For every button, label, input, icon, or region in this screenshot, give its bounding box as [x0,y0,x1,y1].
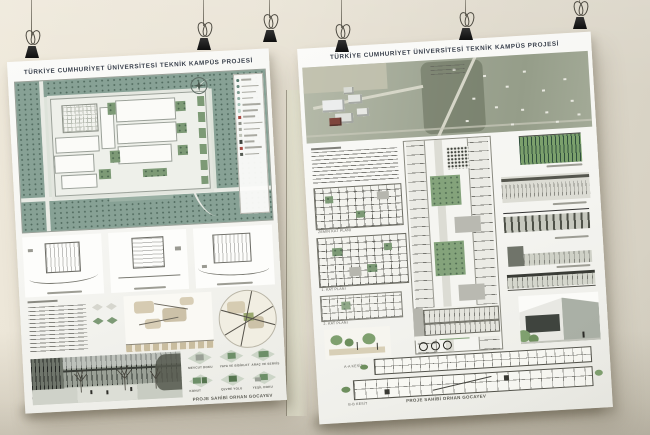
tree-icon [595,369,603,375]
aerial-building-red [329,118,341,127]
massing-label: YAYA VE BİSİKLET [220,363,250,369]
building-block [54,154,95,174]
bare-tree-icon [147,366,164,394]
legend-swatch-icon [236,85,239,88]
tree-icon [330,335,343,346]
building-hatched [61,103,98,133]
building-block [116,121,177,144]
legend-swatch-icon [240,146,243,149]
legend-text-bar [245,146,262,148]
sketch-buildings [132,236,165,268]
aerial-building [348,94,363,104]
elevation-drawing [507,242,592,267]
circle-detail [431,341,441,351]
courtyard [107,102,116,114]
floor-plan-small [316,233,409,288]
person-silhouette [106,390,108,395]
poster-left: TÜRKİYE CUMHURİYET ÜNİVERSİTESİ TEKNİK K… [7,48,287,413]
sketch-caption [47,290,82,294]
plan-courtyard [325,196,333,203]
elevation-drawing [503,208,590,237]
sketch-mark [28,249,33,252]
analysis-sketch [193,224,275,288]
legend-swatch-icon [239,128,242,131]
plan-courtyard [356,210,365,218]
section-solid [384,389,389,394]
elevation-tower [507,246,524,267]
axon-diagram-green [92,317,103,325]
axon-diagram-green [106,317,117,325]
massing-diagram: ARAÇ VE SERVİS [250,346,277,362]
plan-courtyard [341,301,350,310]
person-silhouette [90,390,92,395]
analysis-sketch [22,233,104,297]
legend-swatch-icon [237,103,240,106]
section-solid [504,375,509,380]
elevation-glazing [502,180,591,199]
person-silhouette [357,342,359,350]
elevation-caption [556,264,590,268]
massing-diagram: MEVCUT DOKU [186,350,213,366]
axon-diagram [106,303,117,311]
render-building-side [562,295,601,341]
legend-text-bar [241,85,258,87]
sketch-caption [134,286,166,289]
legend-swatch-icon [236,78,239,81]
courtyard [175,101,186,112]
plan-courtyard [332,248,342,257]
plan-label: 2. KAT PLANI [323,321,348,326]
campus-plate [50,91,211,197]
legend-text-bar [244,134,257,136]
courtyard [176,123,187,134]
plan-block [458,283,485,301]
plan-core [377,191,389,200]
elevation-drawing [501,172,590,203]
massing-label: ÇEVRE YOLU [221,386,243,391]
person-silhouette [130,387,132,392]
massing-diagram: ÇEVRE YOLU [219,371,246,387]
legend-text-bar [245,153,259,155]
elevation-drawing [519,132,583,165]
massing-diagram: KONUT [188,373,215,389]
sketch-patch [180,297,194,306]
sketch-road [118,274,181,278]
analysis-sketch-row [22,224,275,297]
elevation-colonnade [503,212,590,233]
legend-swatch-icon [238,122,241,125]
building-block [115,97,176,122]
massing-label: KONUT [189,388,201,393]
courtyard [178,145,189,156]
sketch-road [29,267,99,285]
building-block [118,144,173,165]
elevation-caption [546,163,582,167]
program-text-block [311,147,399,184]
floor-plan-small [313,183,403,230]
elevation-caption [553,201,587,205]
person-silhouette [377,343,379,350]
tree-icon [362,333,376,345]
landscape-vignette [324,326,392,360]
building-block [61,174,98,190]
sketch-mark [175,246,181,250]
legend-swatch-icon [239,134,242,137]
person-silhouette [583,332,585,338]
courtyard [110,150,121,163]
legend-swatch-icon [239,140,242,143]
text-block [28,304,88,353]
plan-courtyard [384,243,392,250]
legend-swatch-icon [237,97,240,100]
concept-row [26,288,279,357]
text-block-heading [28,300,58,304]
courtyard [143,168,167,177]
plan-label: 1. KAT PLANI [321,287,346,292]
circle-detail [443,340,453,350]
tree-icon [341,386,350,393]
legend-text-bar [242,103,260,105]
plan-courtyard [367,264,377,273]
plan-core [349,267,362,277]
legend-item [240,150,264,157]
plan-courtyard [430,175,462,207]
render-glazing [526,314,561,333]
plan-block [454,215,481,233]
aerial-building [343,87,353,95]
legend-text-bar [242,97,253,99]
sketch-mark [201,265,206,268]
poster-right: TÜRKİYE CUMHURİYET ÜNİVERSİTESİ TEKNİK K… [297,32,613,425]
aerial-annotations [430,64,465,76]
legend-text-bar [243,121,262,123]
elevation-caption [555,235,589,239]
sketch-patch [134,301,155,314]
legend-text-bar [244,128,260,130]
architectural-render [31,351,183,405]
floor-plan-small [320,291,403,322]
massing-diagram-grid: MEVCUT DOKU YAYA VE BİSİKLET ARAÇ VE SER… [186,346,280,395]
sketch-buildings [213,233,253,263]
aerial-building [357,108,369,117]
sketch-road [198,258,270,277]
bare-tree-icon [115,364,135,396]
sketch-caption [217,281,253,285]
massing-diagram: YAYA VE BİSİKLET [218,348,245,364]
massing-label: YEŞİL DOKU [253,385,273,390]
circle-detail [419,342,429,352]
aerial-render [302,51,592,144]
legend-swatch-icon [238,116,241,119]
bare-tree-icon [71,368,90,398]
legend-swatch-icon [238,109,241,112]
legend-swatch-icon [240,153,243,156]
legend-text-bar [241,79,251,81]
legend-text-bar [243,116,255,118]
section-label: B-B KESİT [348,402,367,407]
plan-courtyard [434,241,466,277]
perspective-render [518,292,601,345]
legend-text-bar [244,140,254,142]
round-map [217,288,278,349]
legend-text-bar [243,109,258,111]
axon-diagram [92,303,103,311]
tree-icon [344,338,353,347]
tree-icon [360,364,368,369]
site-plan [14,69,274,234]
massing-label: ARAÇ VE SERVİS [251,361,279,366]
elevation-drawing [507,270,596,291]
building-block [55,135,100,153]
concept-sketch-map [123,292,214,353]
courtyard [99,169,112,180]
section-stair-line [433,376,492,391]
massing-diagram: YEŞİL DOKU [251,369,278,385]
elevation-drawing [413,304,501,341]
aerial-building [322,99,345,112]
plan-label: ZEMİN KAT PLANI [318,228,351,234]
analysis-sketch [108,229,190,293]
legend-swatch-icon [237,91,240,94]
legend-text-bar [242,91,256,93]
massing-label: MEVCUT DOKU [188,365,213,370]
plan-plaza-grid [446,146,469,169]
